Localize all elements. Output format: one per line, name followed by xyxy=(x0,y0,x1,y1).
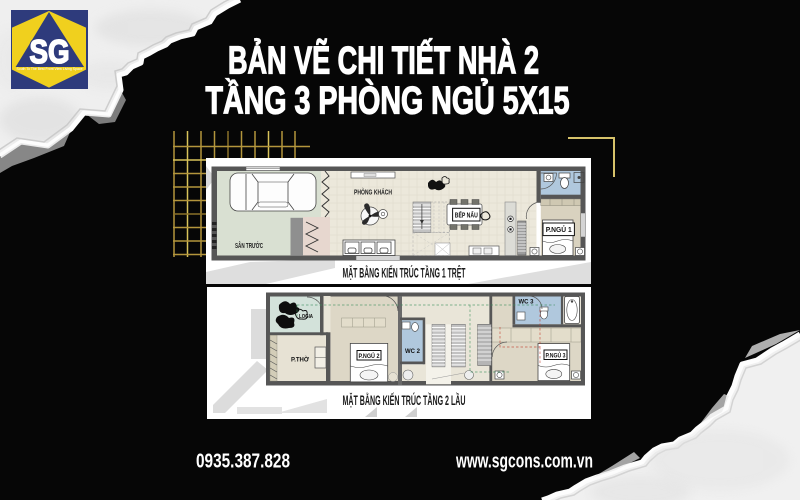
svg-text:TẦNG 3 PHÒNG NGỦ 5X15: TẦNG 3 PHÒNG NGỦ 5X15 xyxy=(206,79,570,123)
svg-text:www.sgcons.com.vn: www.sgcons.com.vn xyxy=(455,450,593,473)
svg-text:MẶT BẰNG KIẾN TRÚC TẦNG 1 TRỆT: MẶT BẰNG KIẾN TRÚC TẦNG 1 TRỆT xyxy=(343,266,466,281)
svg-text:WC 2: WC 2 xyxy=(405,349,421,355)
svg-text:South To The Best Front View L: South To The Best Front View Living Spac… xyxy=(17,66,84,71)
svg-text:P.NGỦ 3: P.NGỦ 3 xyxy=(546,350,566,359)
svg-text:BẢN VẼ CHI TIẾT NHÀ 2: BẢN VẼ CHI TIẾT NHÀ 2 xyxy=(228,39,539,83)
svg-text:LOGIA: LOGIA xyxy=(299,314,313,320)
svg-text:P.NGỦ 1: P.NGỦ 1 xyxy=(546,225,572,234)
svg-text:MẶT BẰNG KIẾN TRÚC TẦNG 2 LẦU: MẶT BẰNG KIẾN TRÚC TẦNG 2 LẦU xyxy=(343,393,466,408)
svg-text:P.THỜ: P.THỜ xyxy=(291,355,309,364)
svg-text:PHÒNG KHÁCH: PHÒNG KHÁCH xyxy=(354,188,392,197)
svg-text:0935.387.828: 0935.387.828 xyxy=(196,450,290,473)
svg-text:SÂN TRƯỚC: SÂN TRƯỚC xyxy=(235,241,263,250)
svg-text:WC 3: WC 3 xyxy=(519,300,535,306)
svg-text:P.NGỦ 2: P.NGỦ 2 xyxy=(359,351,380,360)
svg-text:SG: SG xyxy=(30,33,70,70)
